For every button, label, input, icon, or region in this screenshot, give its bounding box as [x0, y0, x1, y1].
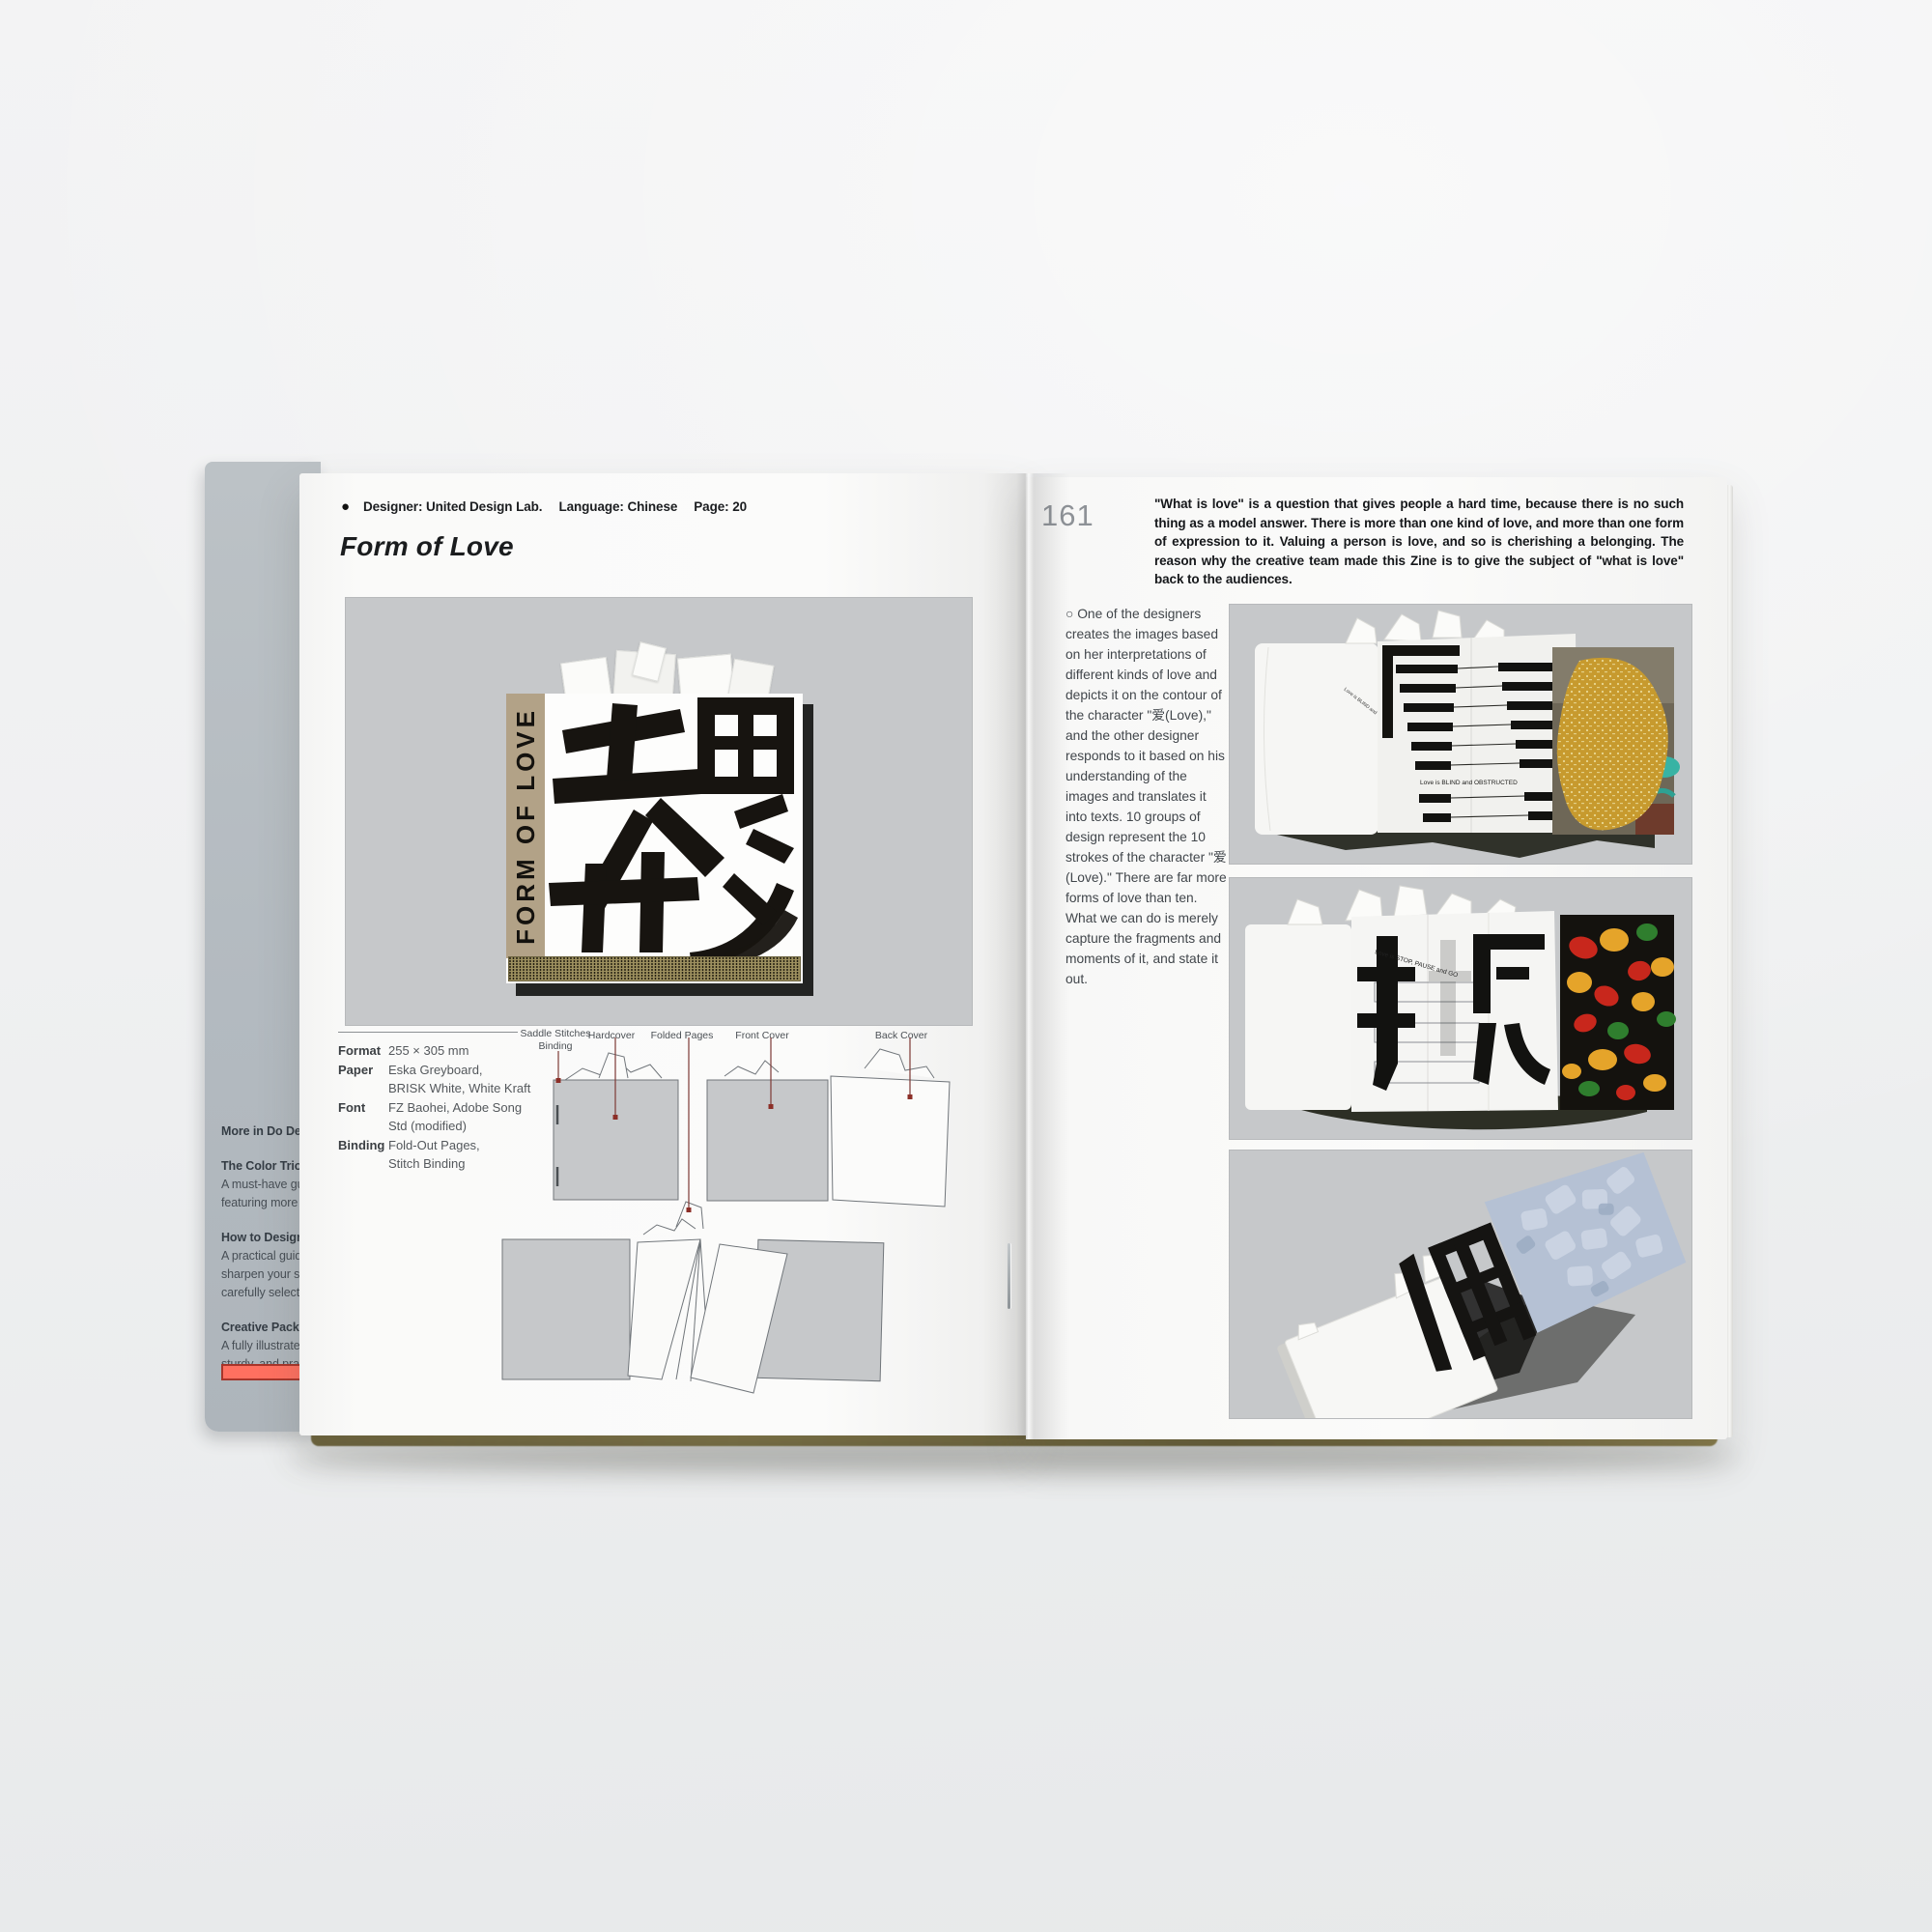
book-shadow: [290, 1441, 1739, 1474]
cover-vertical-title: FORM OF LOVE: [511, 707, 541, 945]
photo2-artwork: Love is STOP, PAUSE and GO: [1230, 878, 1691, 1139]
photo-spread-3: [1229, 1150, 1692, 1419]
cover-spine-strip: FORM OF LOVE: [506, 694, 545, 958]
cover-glyph-svg: [545, 694, 803, 958]
cover-photo-panel: FORM OF LOVE: [345, 597, 973, 1026]
right-page: 161 "What is love" is a question that gi…: [1026, 477, 1727, 1439]
project-title: Form of Love: [340, 531, 514, 562]
photo-spread-1: Love is BLIND and Love is BLIND and OBST…: [1229, 604, 1692, 865]
cover-glyph-artwork: [545, 694, 803, 958]
spec-value: Fold-Out Pages, Stitch Binding: [388, 1136, 480, 1174]
binding-diagram: [483, 1022, 995, 1428]
zine-cover: FORM OF LOVE: [506, 694, 803, 983]
left-page: ● Designer: United Design Lab. Language:…: [299, 473, 1026, 1435]
bullet-icon: ●: [341, 498, 350, 515]
designer-label: Designer: United Design Lab.: [363, 499, 542, 514]
intro-paragraph: "What is love" is a question that gives …: [1154, 495, 1684, 589]
spec-value: 255 × 305 mm: [388, 1041, 469, 1061]
spec-label: Paper: [338, 1061, 388, 1098]
cover-microtext-strip: [508, 956, 801, 981]
spec-label: Binding: [338, 1136, 388, 1174]
page-number-161: 161: [1041, 498, 1094, 533]
photo-spread-2: Love is STOP, PAUSE and GO: [1229, 877, 1692, 1140]
description-text: One of the designers creates the images …: [1065, 607, 1227, 986]
photo3-artwork: [1230, 1151, 1691, 1418]
description-column: ○ One of the designers creates the image…: [1065, 604, 1230, 989]
language-label: Language: Chinese: [558, 499, 677, 514]
binding-staple: [1008, 1243, 1010, 1309]
circle-marker-icon: ○: [1065, 607, 1073, 621]
spec-label: Font: [338, 1098, 388, 1136]
photo1-artwork: Love is BLIND and Love is BLIND and OBST…: [1230, 605, 1691, 864]
spec-label: Format: [338, 1041, 388, 1061]
photo1-caption: Love is BLIND and OBSTRUCTED: [1420, 780, 1518, 786]
undercover-red-bar: [221, 1364, 302, 1380]
project-meta-row: ● Designer: United Design Lab. Language:…: [341, 498, 763, 515]
pagecount-label: Page: 20: [694, 499, 747, 514]
